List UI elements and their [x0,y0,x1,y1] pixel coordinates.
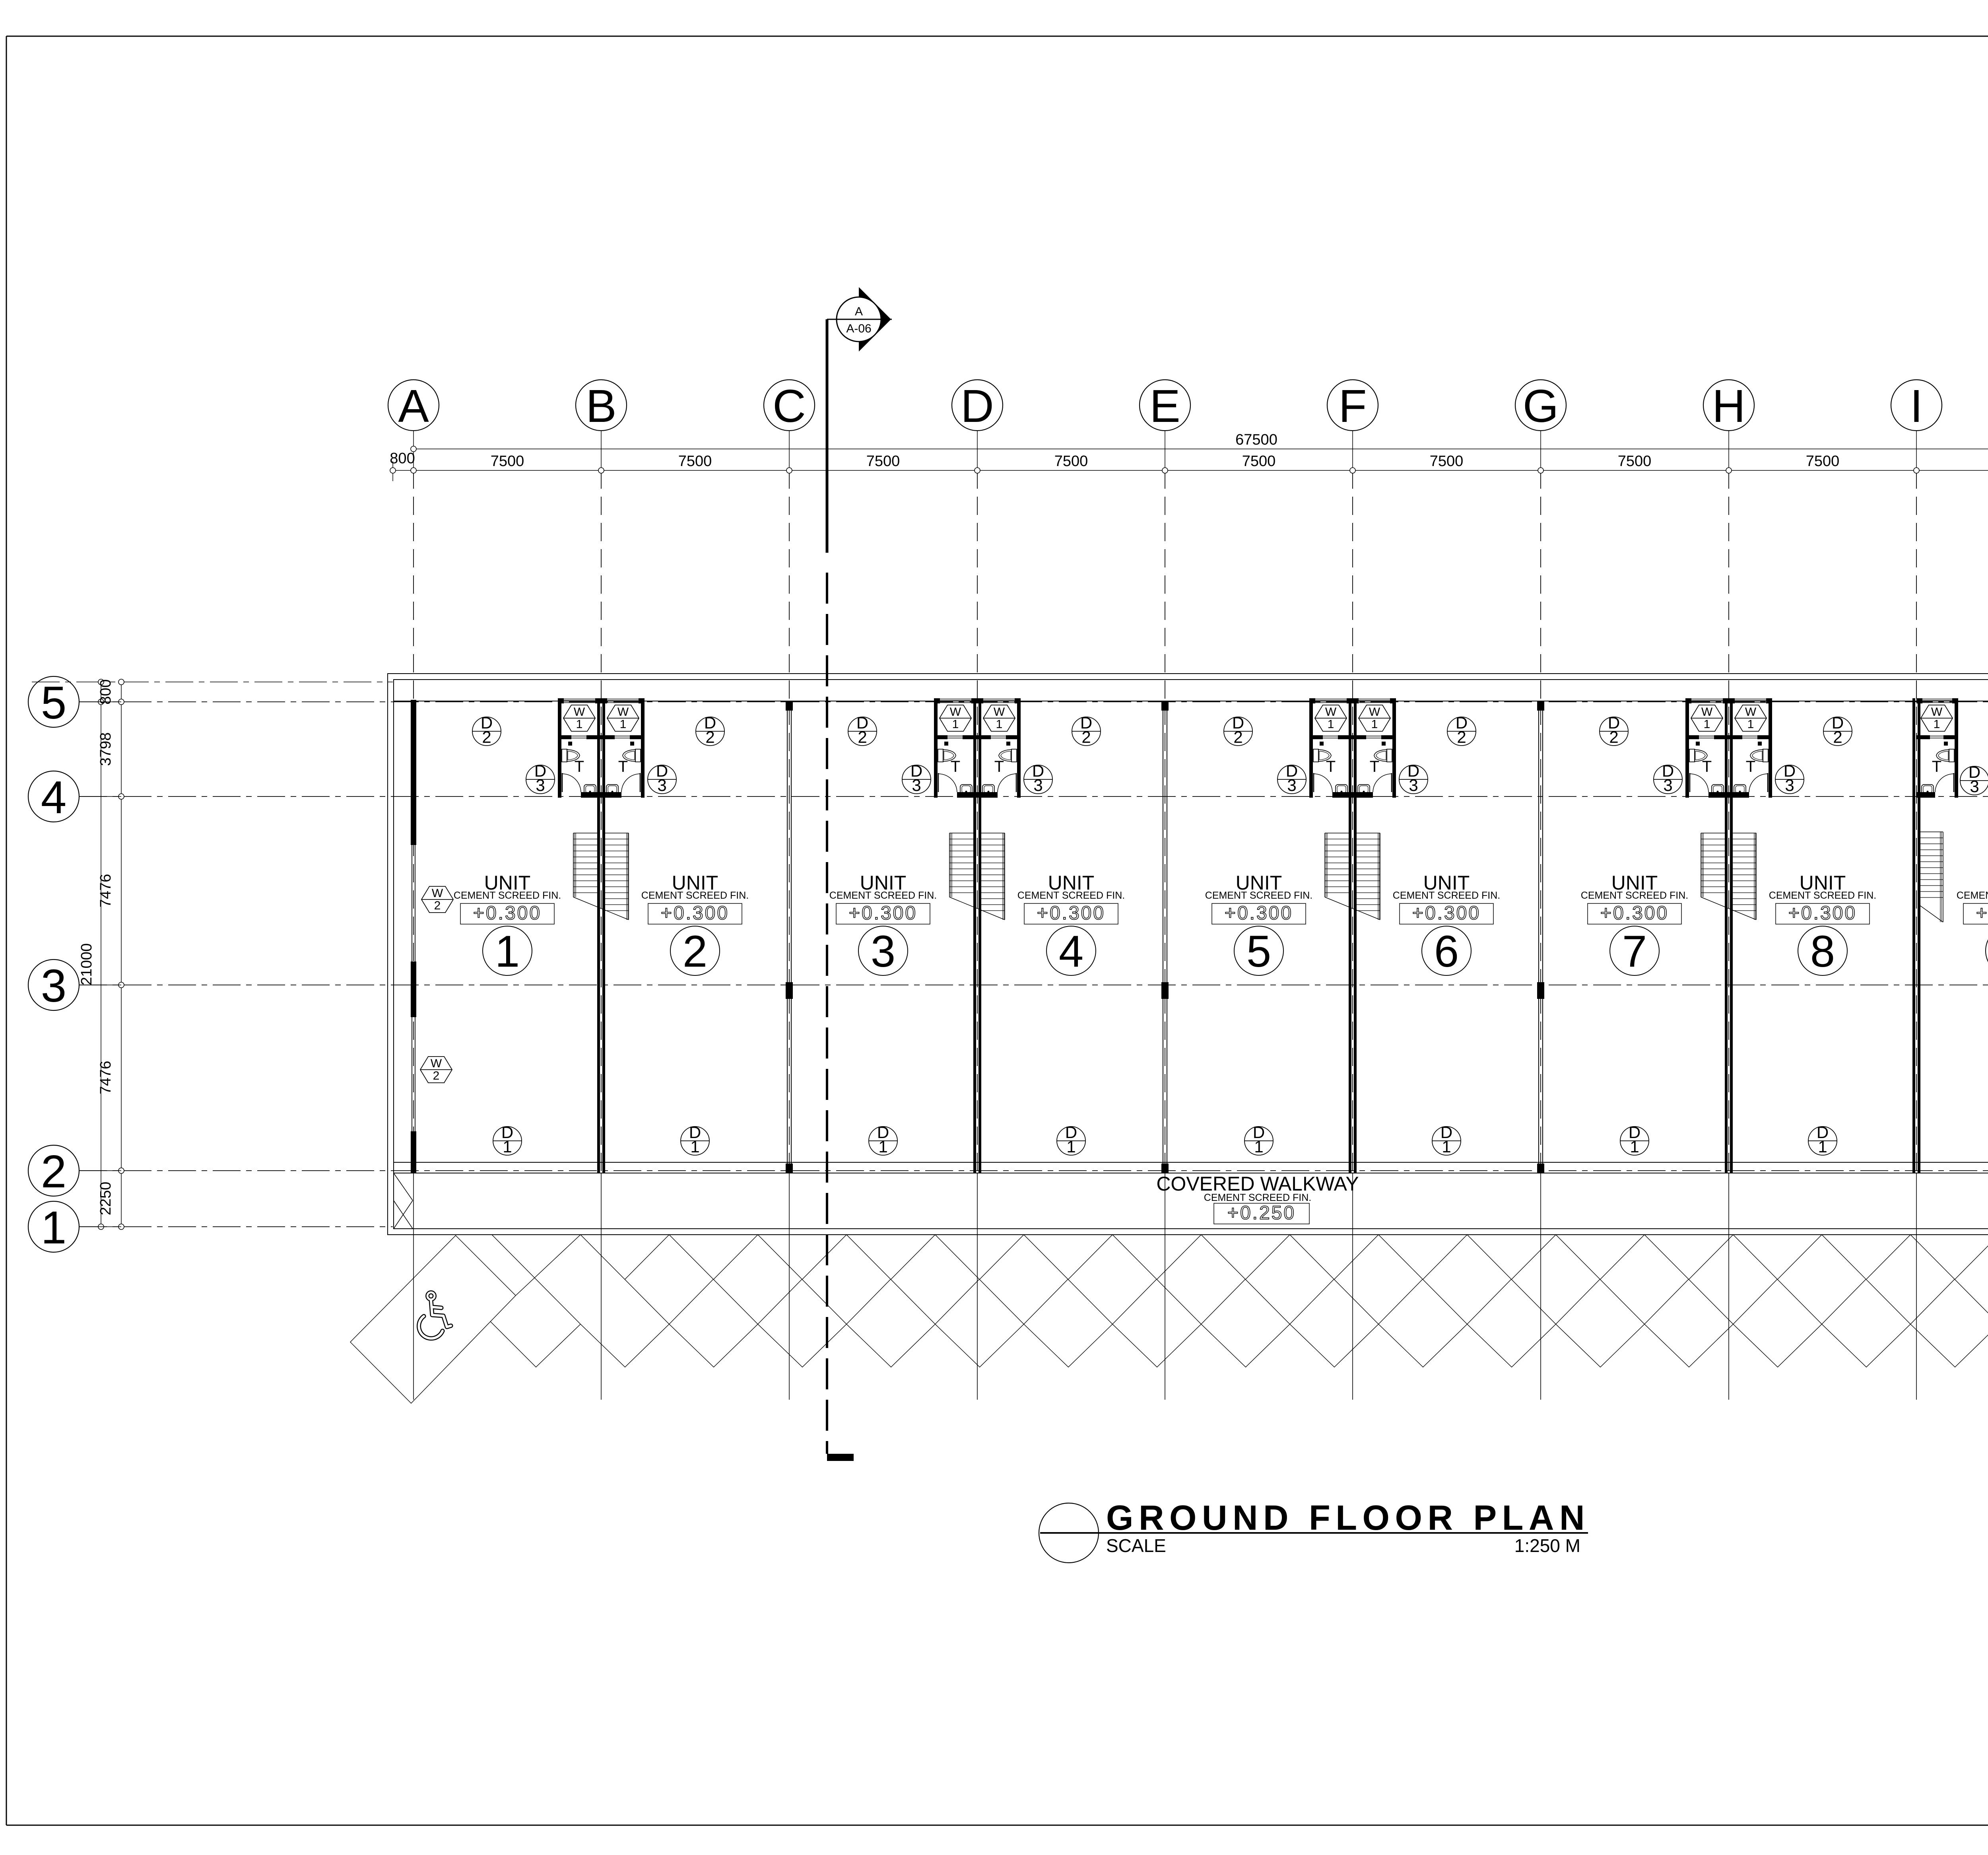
svg-text:C: C [773,380,806,432]
svg-text:GROUND FLOOR PLAN: GROUND FLOOR PLAN [1106,1498,1590,1537]
svg-text:5: 5 [41,677,67,728]
svg-text:W: W [431,1057,442,1070]
svg-text:7500: 7500 [1430,453,1464,470]
svg-text:3: 3 [1033,776,1043,794]
svg-text:F: F [1339,380,1367,432]
svg-text:CEMENT SCREED FIN.: CEMENT SCREED FIN. [1581,890,1688,901]
svg-text:2250: 2250 [97,1182,114,1216]
svg-text:+0.300: +0.300 [1037,903,1105,924]
svg-text:2: 2 [1457,728,1466,746]
svg-text:T: T [1702,758,1712,775]
svg-text:G: G [1523,380,1559,432]
svg-text:3: 3 [871,927,895,976]
svg-text:1: 1 [1818,1137,1827,1156]
svg-text:+0.300: +0.300 [1600,903,1669,924]
svg-text:1: 1 [996,718,1003,731]
svg-text:3: 3 [1409,776,1418,794]
svg-text:1: 1 [620,718,627,731]
svg-text:1: 1 [1442,1137,1451,1156]
svg-text:1: 1 [1630,1137,1639,1156]
svg-text:1: 1 [952,718,959,731]
svg-text:+0.300: +0.300 [1788,903,1857,924]
svg-text:W: W [1369,705,1380,719]
svg-text:+0.300: +0.300 [849,903,917,924]
svg-text:3: 3 [657,776,666,794]
svg-text:800: 800 [390,450,415,467]
svg-text:1: 1 [1254,1137,1263,1156]
svg-text:W: W [1931,705,1943,719]
svg-text:CEMENT SCREED FIN.: CEMENT SCREED FIN. [1769,890,1876,901]
svg-text:W: W [994,705,1005,719]
svg-text:I: I [1910,380,1923,432]
svg-text:CEMENT SCREED FIN.: CEMENT SCREED FIN. [1957,890,1988,901]
svg-text:1: 1 [1371,718,1378,731]
svg-text:5: 5 [1246,927,1271,976]
svg-text:T: T [575,758,584,775]
svg-text:2: 2 [858,728,867,746]
svg-text:T: T [951,758,960,775]
svg-text:+0.300: +0.300 [1412,903,1481,924]
svg-text:3: 3 [536,776,545,794]
svg-text:1: 1 [576,718,583,731]
svg-text:1: 1 [1066,1137,1076,1156]
svg-text:7500: 7500 [678,453,712,470]
svg-text:7500: 7500 [1806,453,1840,470]
svg-text:3: 3 [1287,776,1296,794]
svg-text:+0.300: +0.300 [473,903,542,924]
svg-text:1: 1 [41,1202,67,1253]
svg-text:1: 1 [1328,718,1334,731]
svg-text:3: 3 [1970,777,1979,796]
svg-text:67500: 67500 [1235,431,1277,448]
svg-text:2: 2 [1833,728,1842,746]
svg-text:1: 1 [690,1137,699,1156]
svg-text:W: W [1745,705,1757,719]
svg-text:H: H [1712,380,1745,432]
svg-text:+0.300: +0.300 [1976,903,1988,924]
svg-text:8: 8 [1810,927,1835,976]
svg-text:7500: 7500 [866,453,900,470]
svg-text:1: 1 [878,1137,887,1156]
svg-text:3: 3 [912,776,921,794]
svg-text:+0.250: +0.250 [1227,1202,1296,1224]
svg-text:W: W [1325,705,1337,719]
svg-text:W: W [432,887,443,900]
svg-text:W: W [950,705,961,719]
svg-text:T: T [618,758,628,775]
svg-text:2: 2 [1609,728,1618,746]
svg-text:T: T [1370,758,1379,775]
svg-text:T: T [1932,758,1941,775]
svg-text:T: T [1746,758,1755,775]
svg-text:W: W [1701,705,1713,719]
svg-text:COVERED WALKWAY: COVERED WALKWAY [1156,1173,1359,1195]
svg-text:CEMENT SCREED FIN.: CEMENT SCREED FIN. [1204,1192,1311,1203]
svg-text:7500: 7500 [491,453,524,470]
svg-text:W: W [574,705,585,719]
svg-text:A-06: A-06 [846,322,871,335]
svg-text:2: 2 [1081,728,1091,746]
svg-text:+0.300: +0.300 [661,903,729,924]
svg-text:6: 6 [1434,927,1459,976]
svg-text:1: 1 [1747,718,1754,731]
svg-text:2: 2 [434,899,441,912]
svg-text:21000: 21000 [78,943,95,985]
svg-text:T: T [1326,758,1336,775]
svg-text:CEMENT SCREED FIN.: CEMENT SCREED FIN. [1393,890,1500,901]
svg-text:7476: 7476 [97,874,114,908]
svg-text:CEMENT SCREED FIN.: CEMENT SCREED FIN. [829,890,937,901]
svg-text:3: 3 [1663,776,1672,794]
svg-text:7500: 7500 [1242,453,1276,470]
svg-text:E: E [1149,380,1180,432]
svg-text:1: 1 [503,1137,512,1156]
svg-text:CEMENT SCREED FIN.: CEMENT SCREED FIN. [1017,890,1125,901]
svg-text:2: 2 [41,1146,67,1197]
svg-text:800: 800 [97,679,114,704]
svg-text:2: 2 [433,1069,440,1082]
svg-text:7: 7 [1622,927,1647,976]
svg-text:1: 1 [1934,718,1940,731]
svg-text:1: 1 [1704,718,1710,731]
svg-text:4: 4 [41,771,67,823]
svg-text:A: A [855,305,863,318]
svg-text:4: 4 [1059,927,1083,976]
svg-text:CEMENT SCREED FIN.: CEMENT SCREED FIN. [641,890,749,901]
svg-text:W: W [617,705,629,719]
svg-text:CEMENT SCREED FIN.: CEMENT SCREED FIN. [454,890,561,901]
svg-text:+0.300: +0.300 [1225,903,1293,924]
svg-text:B: B [586,380,616,432]
svg-text:2: 2 [705,728,714,746]
svg-text:D: D [961,380,994,432]
svg-text:3798: 3798 [97,732,114,766]
svg-text:2: 2 [683,927,707,976]
svg-text:CEMENT SCREED FIN.: CEMENT SCREED FIN. [1205,890,1312,901]
svg-text:A: A [398,380,429,432]
svg-text:7500: 7500 [1054,453,1088,470]
svg-text:T: T [994,758,1004,775]
svg-text:1:250 M: 1:250 M [1514,1535,1580,1556]
svg-text:7476: 7476 [97,1061,114,1095]
svg-text:7500: 7500 [1618,453,1652,470]
svg-text:3: 3 [41,960,67,1012]
svg-text:3: 3 [1785,776,1794,794]
svg-text:1: 1 [495,927,520,976]
svg-text:SCALE: SCALE [1106,1535,1166,1556]
svg-text:2: 2 [1233,728,1242,746]
svg-text:2: 2 [482,728,491,746]
